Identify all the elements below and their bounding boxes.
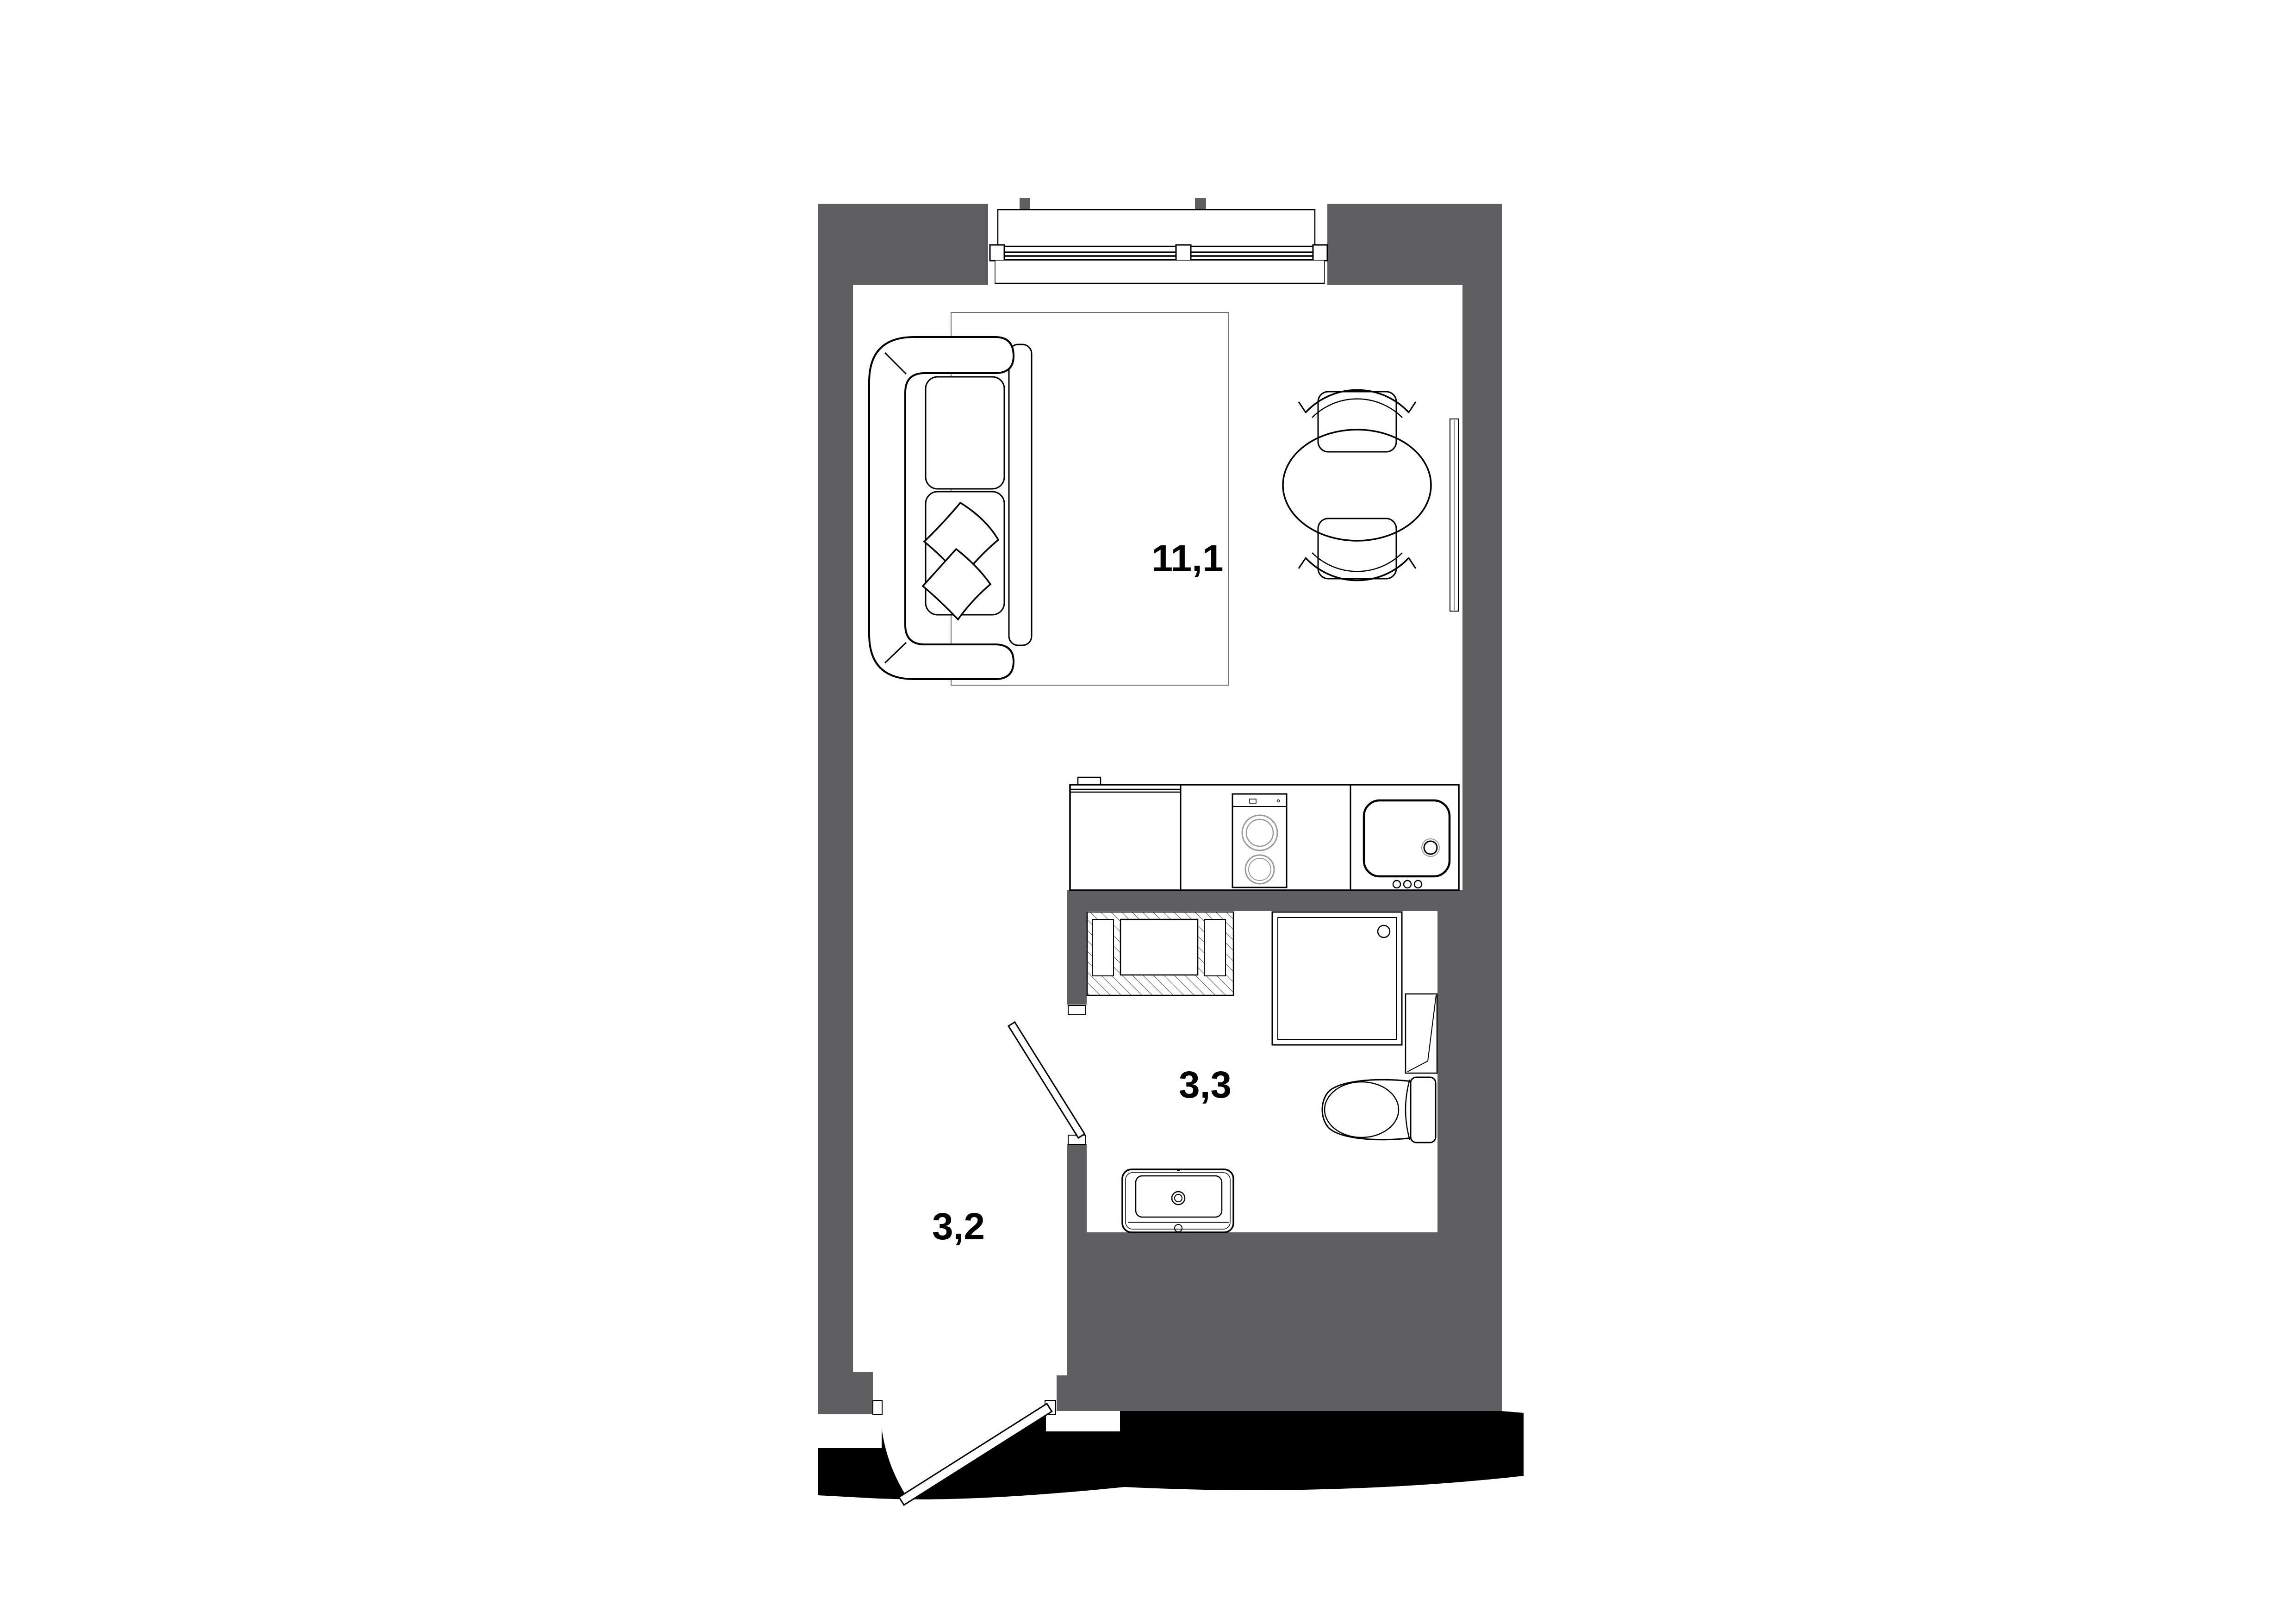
chair-top-backrest-outer (1306, 390, 1408, 412)
sofa (869, 337, 1032, 679)
washer-body (1120, 919, 1198, 975)
toilet-cistern (1411, 1077, 1436, 1143)
floor-plan-page: 11,1 3,3 3,2 (0, 0, 2296, 1624)
chair-top-backrest-tick-left (1299, 402, 1306, 413)
floor-plan-drawing: 11,1 3,3 3,2 (0, 0, 2296, 1624)
sofa-cushion-top (926, 377, 1004, 489)
washer-side-right (1204, 919, 1226, 976)
entrance-jamb-left (873, 1400, 882, 1414)
sink-basin (1364, 800, 1450, 876)
window-jamb-right (1313, 245, 1327, 261)
washing-machine (1087, 912, 1233, 995)
bathroom-sink (1122, 1169, 1233, 1232)
dining-table (1283, 430, 1431, 541)
bathroom-door-leaf (1008, 1022, 1085, 1138)
stove-body (1232, 794, 1287, 887)
balcony-tab-left (1020, 198, 1030, 210)
toilet (1322, 1077, 1436, 1143)
wall-kitchen-bathroom (1067, 890, 1502, 911)
chair-bottom-backrest-inner (1312, 553, 1402, 571)
basin-outer (1122, 1169, 1233, 1232)
shower (1272, 912, 1402, 1045)
radiator (1450, 419, 1458, 611)
chair-top (1299, 390, 1416, 452)
window-assembly (990, 210, 1327, 283)
sofa-front-panel (1009, 344, 1032, 645)
balcony-tab-right (1195, 198, 1206, 210)
chair-top-backrest-inner (1312, 399, 1402, 418)
kitchen-counter (1070, 777, 1459, 890)
stove (1232, 794, 1287, 887)
bathroom-door-jamb-top (1068, 1006, 1086, 1015)
shower-door (1406, 994, 1437, 1073)
bathroom-door (1008, 1006, 1086, 1144)
fridge-handle (1078, 777, 1101, 785)
balcony-outline (998, 210, 1315, 246)
washer-side-left (1092, 919, 1114, 976)
chair-bottom-seat (1318, 518, 1396, 579)
label-living-kitchen: 11,1 (1151, 537, 1223, 580)
chair-bottom-backrest-outer (1306, 558, 1408, 581)
shower-tray-outer (1272, 912, 1402, 1045)
wall-entrance-left-pier (818, 1372, 873, 1414)
dining-set (1283, 390, 1431, 580)
shower-door-panel (1406, 994, 1437, 1073)
chair-top-seat (1318, 392, 1396, 452)
chair-bottom-backrest-tick-right (1408, 557, 1416, 568)
window-mullion-center (1176, 245, 1191, 261)
label-bathroom: 3,3 (1179, 1064, 1232, 1106)
kitchen-sink (1364, 800, 1450, 888)
wall-bathroom-door-top (1067, 911, 1087, 1005)
window-sill-recess (995, 260, 1325, 283)
chair-bottom (1299, 518, 1416, 581)
chair-top-backrest-tick-right (1408, 402, 1416, 413)
chair-bottom-backrest-tick-left (1299, 557, 1306, 568)
label-hallway: 3,2 (932, 1206, 985, 1248)
window-jamb-left (990, 245, 1004, 261)
